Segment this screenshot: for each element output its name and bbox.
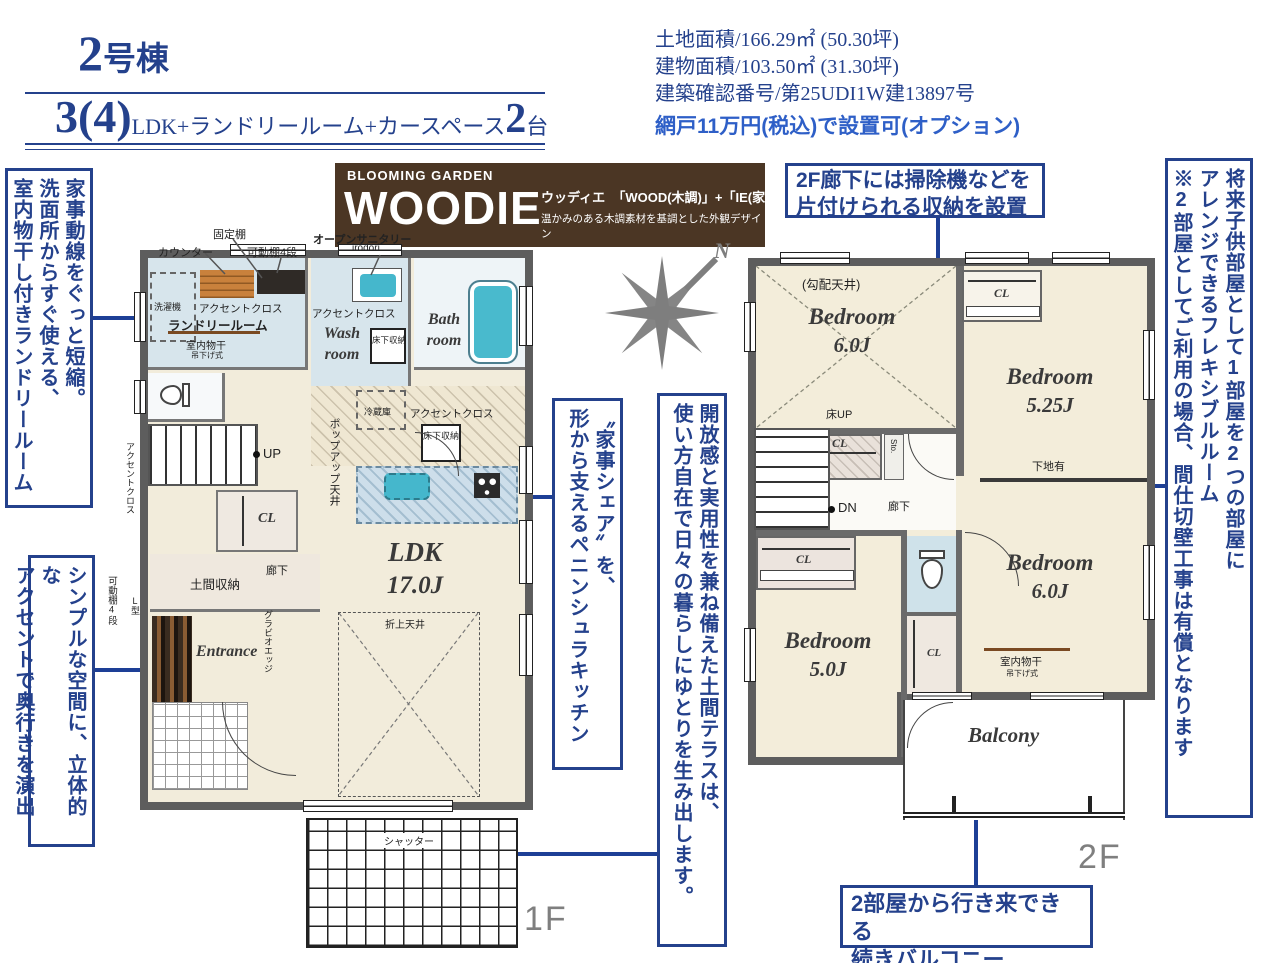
- land-area: 土地面積/166.29㎡ (50.30坪): [655, 27, 975, 54]
- wash-room-label-2: room: [314, 345, 370, 366]
- balcony-door-left: [912, 692, 972, 700]
- gravio-edge-label: グラビオエッジ: [262, 610, 275, 673]
- kitchen-sink: [384, 473, 430, 500]
- closet-2f-bottommid-label: CL: [927, 646, 941, 660]
- plan-desc: LDK+ランドリールーム+カースペース: [132, 113, 506, 141]
- building-title: 2号棟: [78, 24, 169, 82]
- floor-up-label: 床UP: [826, 406, 852, 422]
- header-rule-bottom: [25, 143, 545, 145]
- plan-count: 2: [505, 98, 526, 140]
- window-2f-left-top: [744, 302, 756, 352]
- bedroom6a-label: Bedroom 6.0J: [782, 302, 922, 359]
- stairs-dn-label: DN: [838, 500, 857, 515]
- floor2-label: 2F: [1078, 838, 1122, 877]
- floor2-base-left: [756, 692, 901, 757]
- fridge-space: 冷蔵庫: [356, 390, 406, 430]
- window-2f-left-bottom: [744, 628, 756, 682]
- callout-balcony: 2部屋から行き来できる 続きバルコニー: [840, 885, 1093, 948]
- floor2-wall-bottomleft: [748, 757, 905, 765]
- label-leader-lines: [130, 215, 550, 325]
- closet-2f-mid-label: CL: [832, 436, 847, 452]
- stairs-1f: [148, 424, 258, 486]
- bedroom6b-label-2: 6.0J: [965, 578, 1135, 605]
- bedroom6b-label: Bedroom 6.0J: [965, 548, 1135, 605]
- popup-ceiling-label: ポップアップ天井: [326, 418, 342, 506]
- callout-kitchen-line2: 形から支えるペニンシュラキッチン: [564, 408, 590, 760]
- ldk-label: LDK 17.0J: [355, 535, 475, 603]
- window-2f-top-left: [780, 252, 850, 264]
- callout-flexible: 将来子供部屋として1部屋を2つの部屋に アレンジできるフレキシブルルーム ※2部…: [1165, 158, 1253, 818]
- building-title-num: 2: [78, 25, 103, 81]
- l-type-label: L型: [129, 596, 142, 615]
- balcony-post-right: [1088, 796, 1092, 814]
- fridge-label: 冷蔵庫: [364, 405, 391, 418]
- bedroom5-label-2: 5.0J: [758, 656, 898, 683]
- underfloor-storage-wash: 床下収納: [370, 328, 406, 364]
- closet-2f-bottomleft-label: CL: [796, 552, 811, 568]
- callout-kitchen-line1: 〝家事シェア〟を、: [590, 408, 616, 760]
- logo-reading: ウッディエ: [541, 190, 605, 205]
- balcony-door-right: [1030, 692, 1104, 700]
- shitaji-label: 下地有: [1032, 458, 1065, 474]
- window-2f-right-top: [1143, 330, 1155, 400]
- plan-unit: 台: [526, 113, 548, 141]
- balcony-post-left: [952, 796, 956, 814]
- callout-balcony-line1: 2部屋から行き来できる: [851, 890, 1082, 946]
- callout-storage2f-line1: 2F廊下には掃除機などを: [796, 168, 1034, 195]
- closet-2f-topright-label: CL: [994, 286, 1009, 302]
- callout-laundry-line3: 室内物干し付きランドリールーム: [8, 178, 34, 498]
- hall-accent-cloth-label: アクセントクロス: [124, 442, 137, 514]
- window-2f-top-mid: [965, 252, 1029, 264]
- compass-rose: N: [602, 238, 742, 378]
- kitchen-accent-cloth-label: アクセントクロス: [410, 406, 493, 421]
- bedroom6a-label-1: Bedroom: [782, 302, 922, 332]
- callout-flexible-line2: アレンジできるフレキシブルルーム: [1194, 168, 1220, 808]
- toilet-icon-1f: [160, 379, 190, 413]
- closet-1f-label: CL: [258, 510, 276, 528]
- screen-door-note: 網戸11万円(税込)で設置可(オプション): [655, 110, 1020, 140]
- building-area: 建物面積/103.50㎡ (31.30坪): [655, 54, 975, 81]
- entrance-label: Entrance: [196, 642, 257, 663]
- callout-laundry-line2: 洗面所からすぐ使える、: [34, 178, 60, 498]
- plan-rooms: 3(4): [55, 94, 132, 140]
- compass-north-letter: N: [713, 238, 731, 263]
- storage-2f-sto: Sto.: [884, 434, 904, 480]
- floor2-wall-right: [1147, 258, 1155, 700]
- stove-icon: [474, 473, 500, 498]
- header-rule-thin: [25, 149, 545, 150]
- closet-2f-bottommid: CL: [907, 616, 956, 694]
- balcony-label: Balcony: [968, 722, 1039, 749]
- wash-room-label-1: Wash: [314, 324, 370, 345]
- callout-flexible-line1: 将来子供部屋として1部屋を2つの部屋に: [1220, 168, 1246, 808]
- drying-rod-2f: [984, 648, 1070, 651]
- plan-spec-line: 3(4) LDK+ランドリールーム+カースペース 2 台: [55, 94, 555, 140]
- window-1f-terrace-door: [303, 800, 453, 812]
- callout-terrace-line2: 使い方自在で日々の暮らしにゆとりを生み出します。: [668, 403, 694, 937]
- doma-storage-label: 土間収納: [190, 574, 240, 593]
- side-movable-shelf-label: 可動棚4段: [104, 576, 118, 625]
- hallway-1f-label: 廊下: [266, 562, 288, 578]
- underfloor-wash-label: 床下収納: [372, 335, 406, 345]
- callout-balcony-line2: 続きバルコニー: [851, 946, 1082, 963]
- callout-storage2f-line2: 片付けられる収納を設置: [796, 195, 1034, 222]
- bedroom6b-drying-type: 吊下げ式: [1006, 668, 1038, 679]
- logo-reading-line: ウッディエ 「WOOD(木調)」+「IE(家)」: [541, 187, 782, 206]
- window-1f-right-ldk2: [519, 614, 533, 676]
- floor1-label: 1F: [524, 900, 568, 939]
- window-2f-top-right: [1052, 252, 1110, 264]
- shutter-label: シャッター: [382, 833, 436, 848]
- folded-ceiling-area: 折上天井: [338, 612, 480, 797]
- callout-laundry-line1: 家事動線をぐっと短縮。: [60, 178, 86, 498]
- laundry-drying-type: 吊下げ式: [191, 350, 223, 361]
- window-2f-right-bottom: [1143, 545, 1155, 620]
- callout-laundry: 家事動線をぐっと短縮。 洗面所からすぐ使える、 室内物干し付きランドリールーム: [5, 168, 93, 508]
- building-title-suffix: 号棟: [103, 42, 169, 78]
- floor2-part-shitaji-wall: [980, 478, 1147, 482]
- stairs-dn-dot: [828, 506, 835, 513]
- callout-storage2f: 2F廊下には掃除機などを 片付けられる収納を設置: [785, 163, 1045, 218]
- window-1f-right-ldk1: [519, 520, 533, 584]
- sto-label: Sto.: [889, 439, 898, 453]
- callout-flexible-line3: ※2部屋としてご利用の場合、間仕切壁工事は有償となります: [1168, 168, 1194, 808]
- laundry-underline: [168, 331, 260, 334]
- callout-kitchen: 〝家事シェア〟を、 形から支えるペニンシュラキッチン: [552, 398, 623, 770]
- callout-accent: シンプルな空間に、立体的な アクセントで奥行きを演出: [28, 555, 95, 847]
- callout-accent-line1: シンプルな空間に、立体的な: [36, 565, 88, 837]
- floor2-part-v3: [956, 530, 962, 695]
- sloped-ceiling-label: (勾配天井): [802, 274, 860, 293]
- doma-storage: 土間収納: [150, 554, 320, 612]
- spec-block: 土地面積/166.29㎡ (50.30坪) 建物面積/103.50㎡ (31.3…: [655, 27, 975, 108]
- logo-formula: 「WOOD(木調)」+「IE(家)」: [612, 190, 782, 205]
- flyer-page: 2号棟 3(4) LDK+ランドリールーム+カースペース 2 台 土地面積/16…: [0, 0, 1280, 963]
- folded-ceiling-label: 折上天井: [385, 616, 425, 631]
- bedroom525-label-1: Bedroom: [965, 362, 1135, 392]
- bedroom5-label-1: Bedroom: [758, 626, 898, 656]
- bedroom5-label: Bedroom 5.0J: [758, 626, 898, 683]
- stairs-up-dot: [253, 451, 260, 458]
- callout-terrace: 開放感と実用性を兼ね備えた土間テラスは、 使い方自在で日々の暮らしにゆとりを生み…: [657, 393, 727, 947]
- closet-2f-bottomleft: CL: [756, 536, 856, 590]
- hallway-2f-label: 廊下: [888, 498, 910, 514]
- callout-accent-line2: アクセントで奥行きを演出: [10, 565, 36, 837]
- bedroom6b-label-1: Bedroom: [965, 548, 1135, 578]
- stairs-up-label: UP: [263, 446, 281, 461]
- bedroom6a-label-2: 6.0J: [782, 332, 922, 359]
- bedroom525-label: Bedroom 5.25J: [965, 362, 1135, 419]
- logo-tagline: 温かみのある木調素材を基調とした外観デザイン: [541, 211, 765, 241]
- closet-1f: CL: [216, 490, 298, 552]
- toilet-icon-2f: [916, 550, 948, 594]
- confirmation-number: 建築確認番号/第25UDI1W建13897号: [655, 81, 975, 108]
- bedroom6b-drying-label: 室内物干: [1000, 654, 1042, 669]
- ldk-label-2: 17.0J: [355, 570, 475, 603]
- bath-room-label-2: room: [418, 331, 470, 352]
- window-1f-right-kitchen: [519, 446, 533, 494]
- wash-room-label: Wash room: [314, 324, 370, 366]
- bedroom525-label-2: 5.25J: [965, 392, 1135, 419]
- callout-terrace-line1: 開放感と実用性を兼ね備えた土間テラスは、: [694, 403, 720, 937]
- ldk-label-1: LDK: [355, 535, 475, 570]
- closet-2f-topright: CL: [962, 270, 1042, 322]
- window-1f-left-toilet: [134, 380, 146, 414]
- stairs-2f: [754, 428, 830, 530]
